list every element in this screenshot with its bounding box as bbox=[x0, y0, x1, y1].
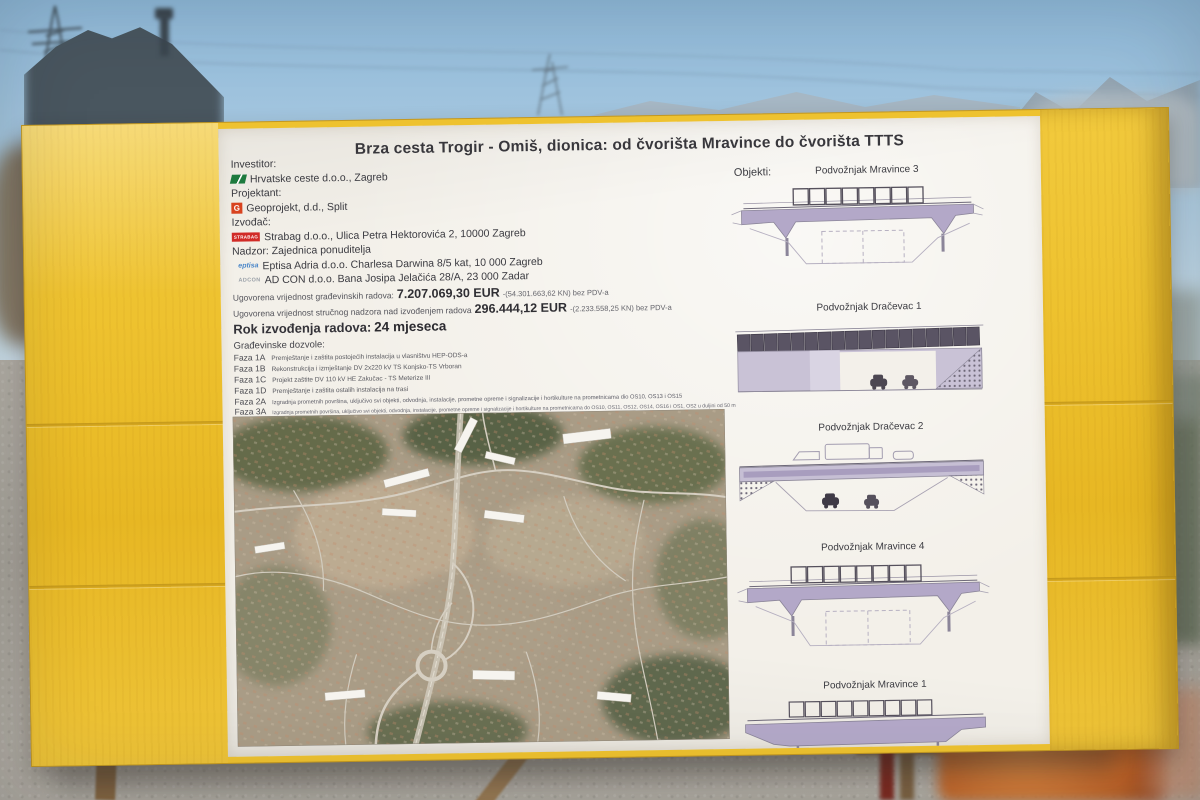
plank-seam bbox=[27, 421, 223, 427]
supervision-value-kn: -(2.233.558,25 KN) bez PDV-a bbox=[570, 303, 672, 314]
car-silhouette bbox=[864, 495, 879, 509]
supervision-label: Nadzor: Zajednica ponuditelja bbox=[232, 244, 371, 258]
bridge-elevation-drawing-mravince-1 bbox=[737, 695, 994, 757]
bridge-piers bbox=[787, 234, 943, 256]
deadline-value: 24 mjeseca bbox=[374, 318, 446, 334]
phase-code: Faza 1D bbox=[234, 385, 266, 396]
phase-code: Faza 1C bbox=[234, 374, 266, 385]
construction-site-photo: Brza cesta Trogir - Omiš, dionica: od čv… bbox=[0, 0, 1200, 800]
supervision-value-label: Ugovorena vrijednost stručnog nadzora na… bbox=[233, 305, 472, 319]
bridge-deck bbox=[747, 582, 979, 617]
contractor-row: STRABAG Strabag d.o.o., Ulica Petra Hekt… bbox=[232, 226, 526, 244]
phase-code: Faza 1A bbox=[234, 352, 266, 362]
bridge-label-2: Podvožnjak Dračevac 1 bbox=[749, 300, 989, 315]
geoprojekt-logo: G bbox=[231, 203, 242, 214]
underpass-profile bbox=[776, 478, 948, 513]
bridge-elevation-drawing-dracevac-1 bbox=[731, 323, 988, 415]
hilltop-tower bbox=[160, 14, 169, 56]
contractor-label: Izvođač: bbox=[231, 216, 270, 229]
plank-seam bbox=[29, 583, 225, 589]
car-silhouette bbox=[822, 493, 839, 508]
adcon-logo: ADCON bbox=[238, 277, 260, 283]
phase-code: Faza 3A bbox=[234, 406, 266, 416]
designer-name: Geoprojekt, d.d., Split bbox=[246, 200, 347, 214]
hrvatske-ceste-logo bbox=[230, 175, 247, 184]
bridge-elevation-drawing-mravince-3 bbox=[729, 179, 987, 295]
contract-value-kn: -(54.301.663,62 KN) bez PDV-a bbox=[503, 288, 609, 299]
contractor-name: Strabag d.o.o., Ulica Petra Hektorovića … bbox=[264, 227, 526, 243]
vehicles-on-deck bbox=[793, 443, 913, 461]
phase-code: Faza 2A bbox=[234, 396, 266, 406]
bridge-label-5: Podvožnjak Mravince 1 bbox=[755, 678, 995, 693]
route-satellite-map bbox=[233, 409, 730, 747]
deadline-label: Rok izvođenja radova: bbox=[233, 320, 371, 337]
supervision-member-name: AD CON d.o.o. Bana Josipa Jelačića 28/A,… bbox=[265, 270, 530, 286]
bridge-deck bbox=[745, 717, 985, 747]
investor-name: Hrvatske ceste d.o.o., Zagreb bbox=[250, 171, 388, 185]
strabag-logo: STRABAG bbox=[232, 232, 260, 241]
noise-barrier-panels bbox=[789, 700, 932, 717]
bridge-label-4: Podvožnjak Mravince 4 bbox=[753, 540, 993, 555]
bridge-elevation-drawing-dracevac-2 bbox=[733, 437, 991, 539]
deadline-row: Rok izvođenja radova: 24 mjeseca bbox=[233, 318, 446, 336]
noise-barrier-panels bbox=[791, 565, 921, 583]
eptisa-logo: eptisa bbox=[238, 262, 258, 269]
supervision-value-amount: 296.444,12 EUR bbox=[474, 301, 567, 316]
bridge-piers bbox=[793, 612, 949, 636]
bridge-label-3: Podvožnjak Dračevac 2 bbox=[751, 420, 991, 435]
permits-label: Građevinske dozvole: bbox=[233, 339, 325, 351]
designer-row: G Geoprojekt, d.d., Split bbox=[231, 200, 347, 215]
frame-right bbox=[1040, 108, 1178, 750]
contract-value-label: Ugovorena vrijednost građevinskih radova… bbox=[233, 290, 394, 303]
abutment-hatch bbox=[950, 475, 984, 495]
hilltop-tower-head bbox=[155, 8, 173, 19]
underpass-opening bbox=[840, 351, 937, 391]
bridge-elevation-drawing-mravince-4 bbox=[735, 557, 993, 673]
phase-code: Faza 1B bbox=[234, 363, 266, 373]
bridge-deck bbox=[741, 204, 973, 239]
abutment-hatch bbox=[740, 481, 774, 501]
transmission-tower-far-icon bbox=[532, 54, 568, 115]
paper-sheet: Brza cesta Trogir - Omiš, dionica: od čv… bbox=[218, 116, 1050, 757]
designer-label: Projektant: bbox=[231, 187, 281, 200]
bridge-label-1: Podvožnjak Mravince 3 bbox=[747, 163, 987, 178]
contract-value-amount: 7.207.069,30 EUR bbox=[397, 286, 500, 302]
plank-seam bbox=[1045, 400, 1173, 405]
plank-seam bbox=[1047, 576, 1175, 581]
phase-text: Rekonstrukcija i izmještanje DV 2x220 kV… bbox=[272, 363, 462, 373]
investor-label: Investitor: bbox=[231, 158, 277, 171]
frame-left bbox=[22, 123, 228, 766]
noise-barrier-panels bbox=[793, 187, 923, 205]
investor-row: Hrvatske ceste d.o.o., Zagreb bbox=[231, 170, 388, 185]
project-title: Brza cesta Trogir - Omiš, dionica: od čv… bbox=[218, 130, 1040, 161]
info-board: Brza cesta Trogir - Omiš, dionica: od čv… bbox=[21, 107, 1179, 767]
